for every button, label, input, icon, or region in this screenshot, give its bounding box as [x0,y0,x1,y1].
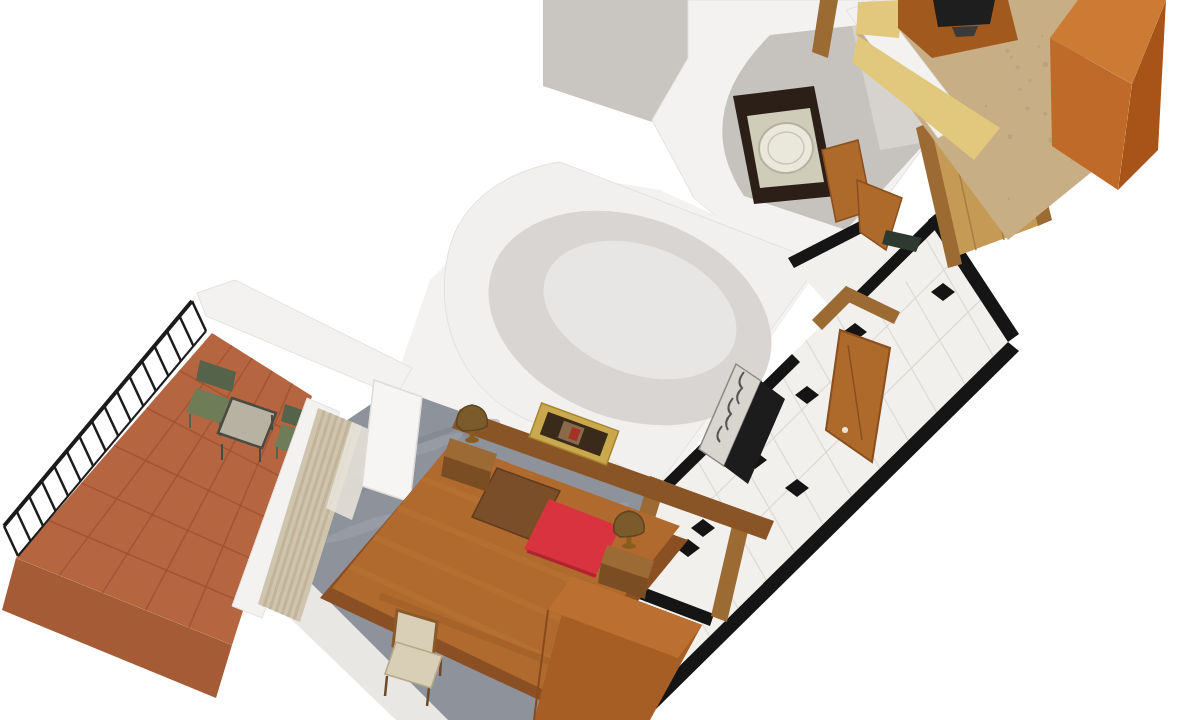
carpet-speckle [1008,135,1013,140]
floorplan-render [0,0,1200,720]
floorplan-stage [0,0,1200,720]
counter-end [856,0,903,38]
tv [933,0,995,27]
lamp-base [465,437,479,443]
carpet-speckle [1026,106,1030,110]
carpet-speckle [1005,49,1009,53]
lamp-shade [614,511,644,537]
tv-base [952,26,978,37]
lamp-base [622,543,636,549]
lamp-shade [457,405,487,431]
carpet-speckle [1041,35,1043,37]
carpet-speckle [1044,112,1048,116]
carpet-speckle [1038,45,1040,47]
carpet-speckle [1028,79,1031,82]
carpet-speckle [1016,66,1020,70]
carpet-speckle [1043,62,1048,67]
carpet-speckle [985,105,987,107]
carpet-speckle [1008,198,1010,200]
entry-door-handle [842,427,848,433]
carpet-speckle [1018,88,1021,91]
carpet-speckle [1010,56,1012,58]
